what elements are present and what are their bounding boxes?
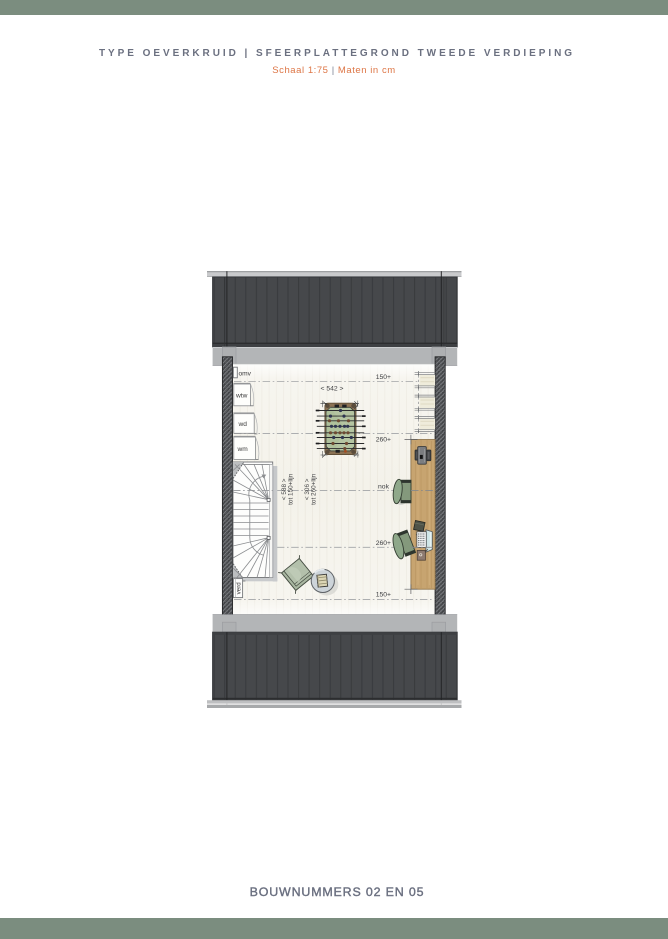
svg-text:150+: 150+ (376, 374, 391, 381)
svg-text:tot 260+lijn: tot 260+lijn (311, 473, 318, 505)
svg-text:260+: 260+ (376, 437, 391, 444)
svg-text:verd: verd (236, 582, 243, 595)
svg-text:260+: 260+ (376, 540, 391, 547)
svg-text:150+: 150+ (376, 591, 391, 598)
svg-text:wm: wm (237, 446, 249, 453)
svg-text:omv: omv (239, 371, 252, 378)
svg-text:< 542 >: < 542 > (320, 386, 343, 393)
svg-text:wtw: wtw (235, 392, 248, 399)
svg-text:nok: nok (378, 483, 390, 490)
svg-text:wd: wd (238, 421, 248, 428)
svg-text:tot 150+lijn: tot 150+lijn (288, 473, 295, 505)
